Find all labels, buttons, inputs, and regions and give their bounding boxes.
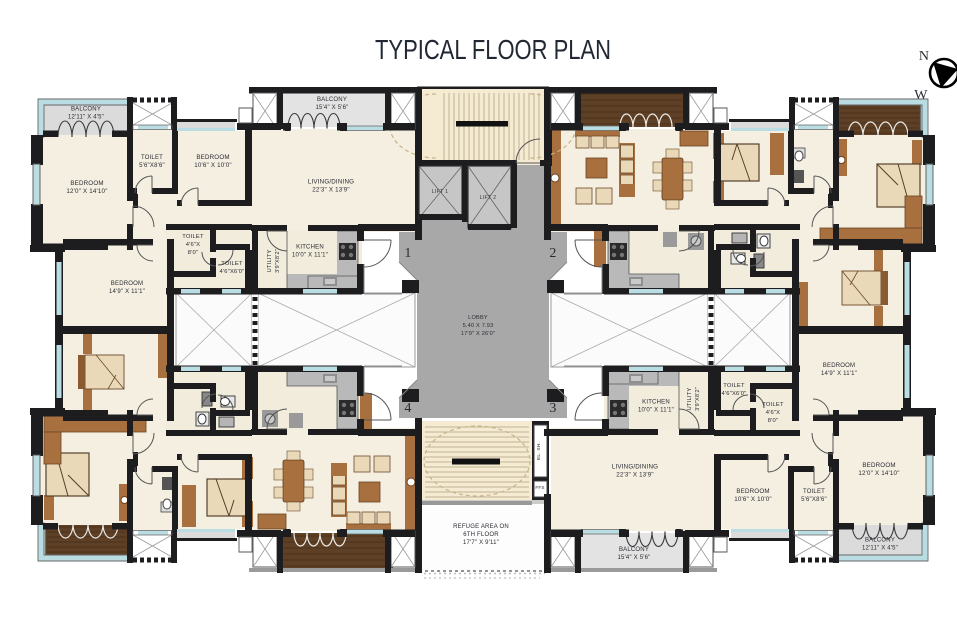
- svg-text:12'11" X 4'5": 12'11" X 4'5": [862, 546, 898, 552]
- svg-text:BEDROOM: BEDROOM: [70, 180, 103, 187]
- svg-text:N: N: [919, 49, 929, 64]
- svg-text:W: W: [914, 88, 928, 103]
- svg-text:2: 2: [549, 246, 556, 261]
- svg-text:17'9" X 26'0": 17'9" X 26'0": [461, 331, 495, 337]
- svg-text:1: 1: [404, 246, 411, 261]
- svg-text:TOILET: TOILET: [762, 402, 784, 408]
- svg-text:17'7" X 9'11": 17'7" X 9'11": [463, 540, 499, 546]
- svg-text:REFUGE AREA ON: REFUGE AREA ON: [453, 524, 509, 530]
- svg-text:8'0": 8'0": [768, 418, 778, 424]
- svg-text:14'9" X 11'1": 14'9" X 11'1": [109, 289, 145, 295]
- svg-text:LIFT 1: LIFT 1: [432, 189, 449, 195]
- svg-text:UTILITY: UTILITY: [687, 388, 693, 411]
- svg-text:TOILET: TOILET: [803, 489, 825, 495]
- svg-text:12'0" X 14'10": 12'0" X 14'10": [858, 470, 899, 477]
- svg-text:BEDROOM: BEDROOM: [862, 462, 895, 469]
- svg-text:22'3" X 13'9": 22'3" X 13'9": [616, 472, 654, 479]
- svg-text:3: 3: [549, 401, 556, 416]
- svg-text:TOILET: TOILET: [182, 234, 204, 240]
- svg-text:5.40 X 7.93: 5.40 X 7.93: [463, 323, 494, 329]
- svg-text:BALCONY: BALCONY: [71, 106, 101, 112]
- svg-text:LIVING/DINING: LIVING/DINING: [612, 463, 658, 470]
- svg-text:UTILITY: UTILITY: [267, 250, 273, 273]
- svg-text:BALCONY: BALCONY: [865, 537, 895, 543]
- svg-text:10'6" X 10'0": 10'6" X 10'0": [734, 496, 772, 503]
- svg-text:KITCHEN: KITCHEN: [642, 399, 670, 405]
- svg-text:12'0" X 14'10": 12'0" X 14'10": [66, 188, 107, 195]
- svg-text:8'0": 8'0": [188, 250, 198, 256]
- svg-text:4'6"X6'0": 4'6"X6'0": [220, 269, 245, 275]
- svg-text:4'6"X6'0": 4'6"X6'0": [722, 391, 747, 397]
- svg-text:BALCONY: BALCONY: [619, 547, 649, 553]
- svg-text:TYPICAL FLOOR PLAN: TYPICAL FLOOR PLAN: [375, 34, 611, 65]
- svg-text:4'6"X: 4'6"X: [186, 242, 200, 248]
- svg-text:FFS: FFS: [535, 485, 544, 490]
- svg-text:LIFT 2: LIFT 2: [480, 195, 497, 201]
- svg-text:6TH FLOOR: 6TH FLOOR: [463, 532, 499, 538]
- svg-text:5'6"X8'6": 5'6"X8'6": [139, 163, 165, 169]
- svg-text:12'11" X 4'5": 12'11" X 4'5": [68, 115, 104, 121]
- svg-text:10'0" X 11'1": 10'0" X 11'1": [638, 408, 674, 414]
- svg-text:LOBBY: LOBBY: [468, 315, 488, 321]
- svg-text:15'4" X 5'6": 15'4" X 5'6": [316, 105, 349, 111]
- svg-text:BALCONY: BALCONY: [317, 97, 347, 103]
- svg-text:EL. SH.: EL. SH.: [536, 442, 542, 460]
- svg-text:BEDROOM: BEDROOM: [736, 488, 769, 495]
- svg-text:10'6" X 10'0": 10'6" X 10'0": [194, 162, 232, 169]
- svg-text:BEDROOM: BEDROOM: [111, 281, 143, 287]
- svg-text:22'3" X 13'9": 22'3" X 13'9": [312, 187, 350, 194]
- svg-text:KITCHEN: KITCHEN: [296, 244, 324, 250]
- svg-text:BEDROOM: BEDROOM: [823, 363, 855, 369]
- svg-text:15'4" X 5'6": 15'4" X 5'6": [618, 555, 651, 561]
- svg-text:BEDROOM: BEDROOM: [196, 154, 229, 161]
- svg-text:3'9"X8'2": 3'9"X8'2": [695, 387, 701, 411]
- svg-text:LIVING/DINING: LIVING/DINING: [308, 178, 354, 185]
- svg-text:10'0" X 11'1": 10'0" X 11'1": [292, 253, 328, 259]
- svg-text:5'6"X8'6": 5'6"X8'6": [801, 497, 827, 503]
- svg-text:4'6"X: 4'6"X: [766, 410, 780, 416]
- svg-text:TOILET: TOILET: [723, 383, 745, 389]
- svg-text:TOILET: TOILET: [221, 261, 243, 267]
- svg-text:4: 4: [404, 401, 411, 416]
- svg-text:TOILET: TOILET: [141, 155, 163, 161]
- svg-text:14'9" X 11'1": 14'9" X 11'1": [821, 371, 857, 377]
- svg-text:3'9"X8'2": 3'9"X8'2": [275, 249, 281, 273]
